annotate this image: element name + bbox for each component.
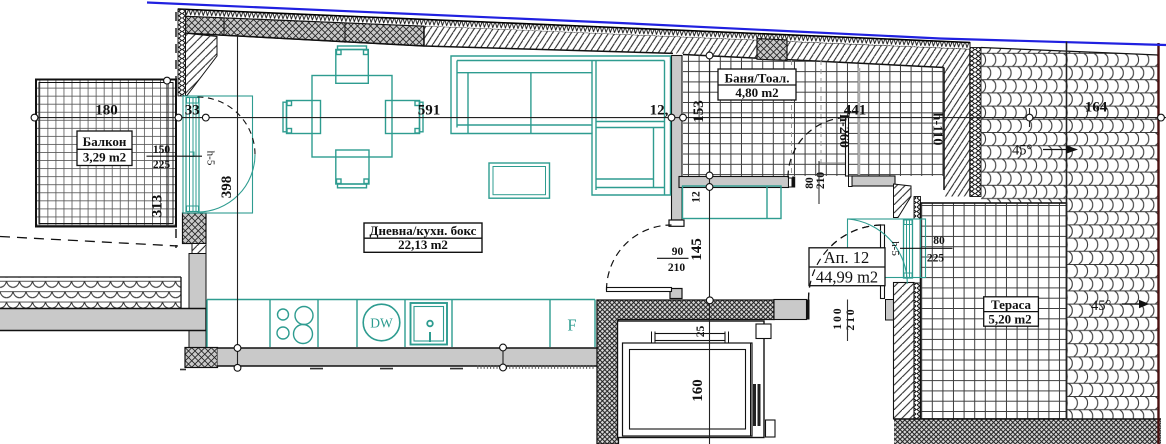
- svg-text:Тераса: Тераса: [991, 297, 1032, 312]
- svg-text:5,20 m2: 5,20 m2: [988, 312, 1031, 327]
- svg-text:210: 210: [815, 172, 827, 190]
- svg-text:45°: 45°: [1091, 298, 1112, 314]
- svg-text:h-260: h-260: [836, 114, 851, 147]
- svg-text:180: 180: [95, 103, 118, 119]
- svg-text:225: 225: [153, 159, 171, 171]
- svg-text:398: 398: [219, 176, 235, 199]
- svg-text:160: 160: [690, 379, 706, 402]
- svg-text:h-5: h-5: [889, 241, 901, 256]
- svg-text:225: 225: [927, 253, 945, 265]
- svg-text:313: 313: [150, 195, 166, 218]
- svg-text:Дневна/кухн. бокс: Дневна/кухн. бокс: [370, 223, 477, 238]
- svg-text:90: 90: [672, 246, 684, 258]
- svg-text:12,: 12,: [650, 103, 669, 119]
- svg-text:44,99 m2: 44,99 m2: [816, 268, 878, 287]
- svg-text:145: 145: [689, 238, 705, 261]
- svg-text:Балкон: Балкон: [83, 134, 127, 149]
- svg-text:100: 100: [832, 306, 844, 329]
- svg-text:h-110: h-110: [930, 113, 945, 146]
- svg-text:164: 164: [1085, 100, 1108, 116]
- svg-text:DW: DW: [370, 316, 393, 331]
- svg-text:591: 591: [418, 103, 441, 119]
- svg-text:3,29 m2: 3,29 m2: [83, 150, 126, 165]
- svg-text:25: 25: [695, 326, 707, 338]
- svg-text:210: 210: [845, 307, 857, 330]
- svg-text:h-5: h-5: [205, 151, 217, 166]
- svg-text:12: 12: [691, 191, 703, 203]
- svg-text:210: 210: [668, 262, 686, 274]
- svg-text:Баня/Тоал.: Баня/Тоал.: [725, 71, 790, 86]
- svg-text:F: F: [567, 316, 576, 335]
- svg-text:45°: 45°: [1012, 143, 1033, 159]
- svg-text:4,80 m2: 4,80 m2: [735, 85, 778, 100]
- svg-text:150: 150: [153, 144, 171, 156]
- svg-text:33: 33: [185, 103, 200, 119]
- svg-text:Ап. 12: Ап. 12: [824, 248, 870, 267]
- svg-text:80: 80: [933, 235, 945, 247]
- svg-text:153: 153: [691, 100, 707, 123]
- svg-text:22,13 m2: 22,13 m2: [398, 237, 448, 252]
